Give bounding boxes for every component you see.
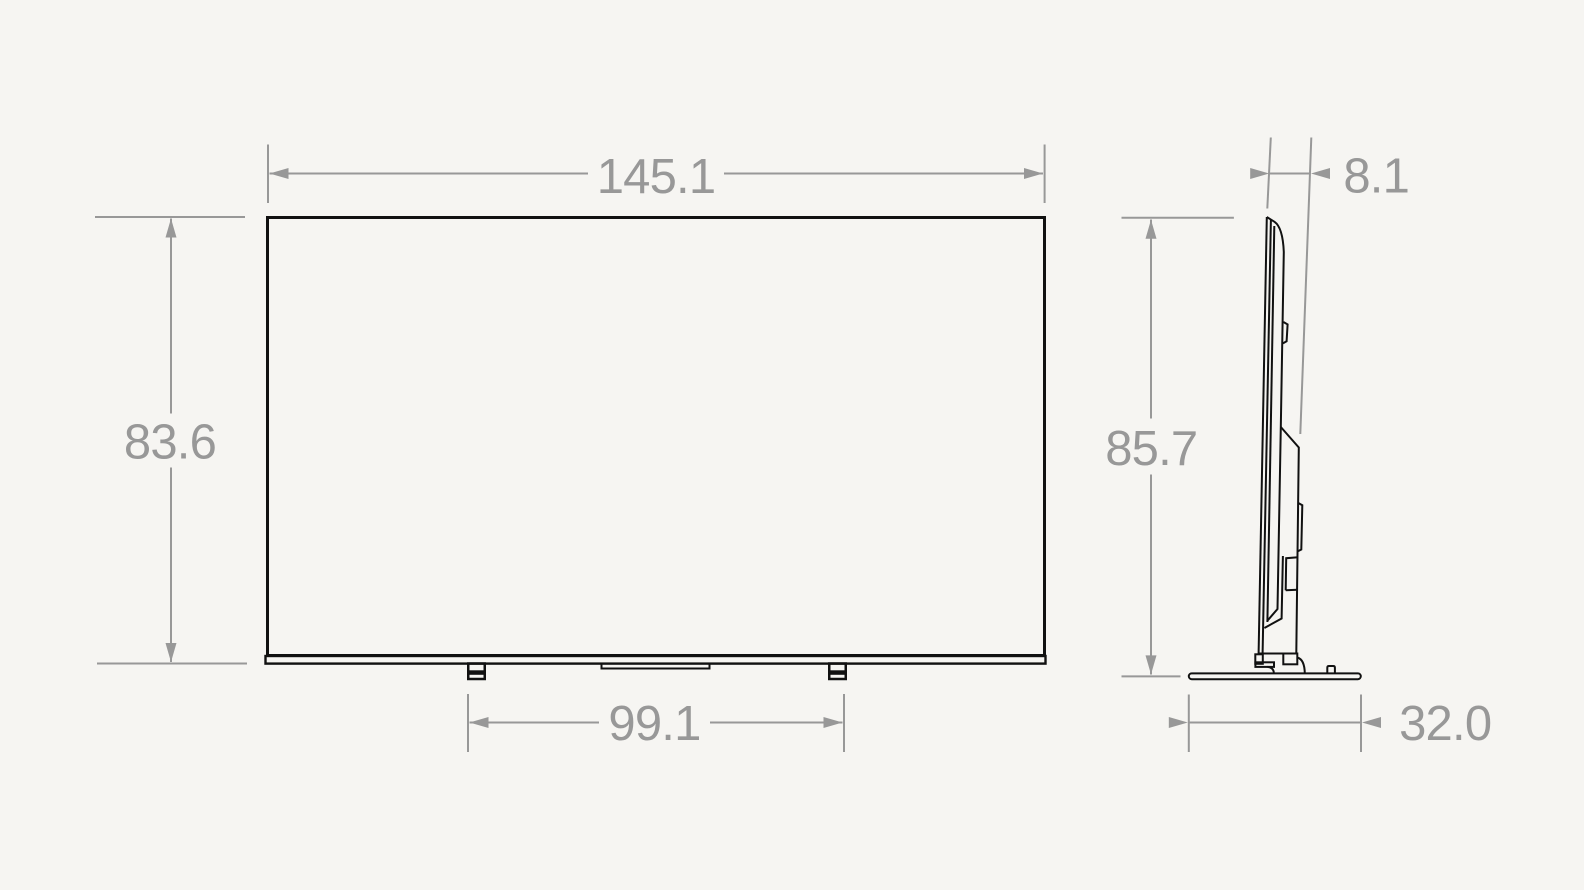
svg-text:8.1: 8.1 xyxy=(1343,150,1409,204)
svg-text:85.7: 85.7 xyxy=(1105,422,1197,476)
svg-text:145.1: 145.1 xyxy=(597,150,716,204)
svg-text:99.1: 99.1 xyxy=(608,697,700,751)
svg-text:32.0: 32.0 xyxy=(1399,697,1491,751)
svg-text:83.6: 83.6 xyxy=(124,416,216,470)
